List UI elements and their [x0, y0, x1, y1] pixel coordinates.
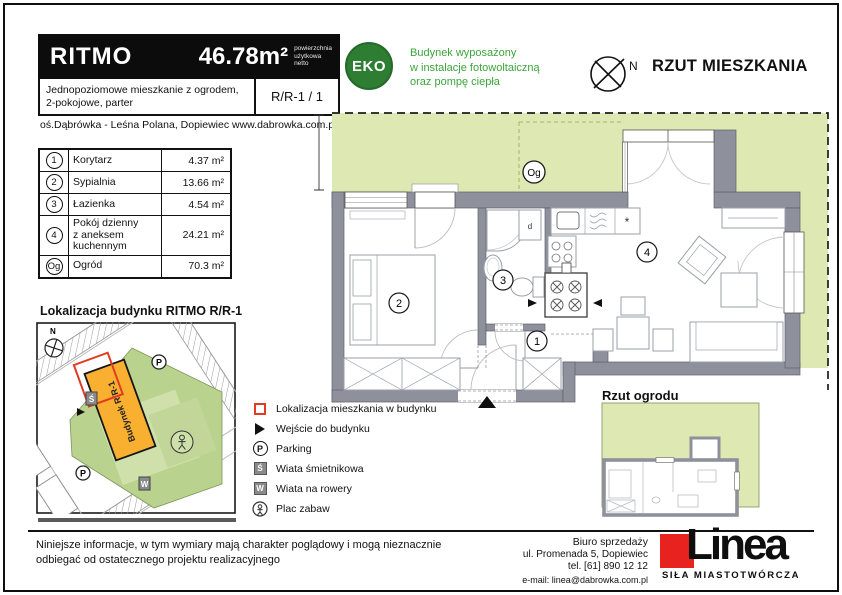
apartment-description: Jednopoziomowe mieszkanie z ogrodem, 2-p…: [40, 79, 254, 114]
map-scale-bar: [38, 518, 236, 522]
room-name: Sypialnia: [69, 172, 162, 193]
room-number-badge: 1: [46, 152, 63, 169]
north-letter: N: [629, 59, 638, 73]
floor-plan-sheet: RITMO 46.78m² powierzchnia użytkowa nett…: [0, 0, 842, 595]
office-phone: tel. [61] 890 12 12: [430, 561, 648, 574]
table-row: 1 Korytarz 4.37 m²: [40, 150, 230, 172]
sales-office-info: Biuro sprzedaży ul. Promenada 5, Dopiewi…: [430, 536, 648, 586]
room-area: 24.21 m²: [162, 216, 230, 255]
room-name: Łazienka: [69, 194, 162, 215]
room-name: Korytarz: [69, 150, 162, 171]
room-number-badge: 3: [46, 196, 63, 213]
office-email: e-mail: linea@dabrowka.com.pl: [430, 574, 648, 587]
room-label-4: 4: [644, 247, 650, 259]
table-row: Og Ogród 70.3 m²: [40, 256, 230, 277]
eco-description: Budynek wyposażony w instalacje fotowolt…: [410, 46, 540, 90]
room-label-2: 2: [396, 298, 402, 310]
office-title: Biuro sprzedaży: [430, 536, 648, 549]
estate-location: oś.Dąbrówka - Leśna Polana, Dopiewiec: [40, 119, 229, 131]
table-row: 3 Łazienka 4.54 m²: [40, 194, 230, 216]
disclaimer: Niniejsze informacje, w tym wymiary mają…: [36, 538, 441, 567]
legend-item: Ś Wiata śmietnikowa: [250, 461, 440, 476]
room-number-badge: Og: [46, 258, 63, 275]
legend-item: W Wiata na rowery: [250, 481, 440, 496]
shaft-arrow-left: [528, 299, 537, 307]
bedroom-furniture: [344, 255, 561, 390]
room-number-badge: 2: [46, 174, 63, 191]
room-area: 4.54 m²: [162, 194, 230, 215]
bathroom-fixtures: [484, 210, 544, 297]
apartment-outline-icon: [254, 403, 266, 415]
playground-icon: [252, 501, 268, 517]
room-name: Pokój dziennyz aneksem kuchennym: [69, 216, 162, 255]
room-label-1: 1: [534, 336, 540, 348]
dining-table: [617, 317, 649, 349]
svg-text:P: P: [80, 469, 86, 479]
stove: [548, 236, 576, 267]
parking-icon: P: [253, 441, 268, 456]
header-description-row: Jednopoziomowe mieszkanie z ogrodem, 2-p…: [38, 79, 340, 116]
appliance-label: d: [528, 222, 532, 231]
mini-apartment: [604, 460, 737, 515]
north-compass-icon: [586, 51, 632, 97]
radiator: [350, 211, 405, 219]
eco-badge: EKO: [345, 42, 393, 90]
logo-wordmark: Linea: [686, 520, 786, 570]
plan-title: RZUT MIESZKANIA: [652, 57, 808, 76]
site-map: Budynek R/R-1 Ś W P P N: [36, 322, 236, 514]
garden-plan: [598, 400, 842, 522]
utility-shaft: [545, 273, 587, 317]
room-area: 13.66 m²: [162, 172, 230, 193]
coffee-table: [721, 273, 757, 307]
chair: [621, 297, 645, 315]
site-map-title: Lokalizacja budynku RITMO R/R-1: [40, 304, 242, 318]
office-address: ul. Promenada 5, Dopiewiec: [430, 549, 648, 562]
chair: [653, 329, 673, 351]
developer-logo: Linea SIŁA MIASTOTWÓRCZA: [660, 531, 818, 583]
bin-shelter-icon: Ś: [254, 462, 267, 475]
shaft-arrow-right: [593, 299, 602, 307]
map-legend: Lokalizacja mieszkania w budynku Wejście…: [250, 401, 440, 522]
entrance-arrow-icon: [255, 423, 265, 435]
svg-text:N: N: [50, 327, 56, 336]
svg-text:P: P: [156, 358, 162, 368]
table-row: 4 Pokój dziennyz aneksem kuchennym 24.21…: [40, 216, 230, 256]
logo-tagline: SIŁA MIASTOTWÓRCZA: [662, 570, 800, 581]
dimension-line: [314, 115, 324, 190]
svg-text:W: W: [141, 480, 149, 489]
area-note: powierzchnia użytkowa netto: [294, 45, 332, 68]
room-area: 4.37 m²: [162, 150, 230, 171]
room-label-3: 3: [500, 275, 506, 287]
legend-item: Wejście do budynku: [250, 421, 440, 436]
table-row: 2 Sypialnia 13.66 m²: [40, 172, 230, 194]
header: RITMO 46.78m² powierzchnia użytkowa nett…: [38, 34, 340, 116]
room-table: 1 Korytarz 4.37 m² 2 Sypialnia 13.66 m² …: [38, 148, 232, 279]
room-number-badge: 4: [46, 227, 63, 244]
chair: [593, 329, 613, 351]
room-area: 70.3 m²: [162, 256, 230, 277]
header-black-bar: RITMO 46.78m² powierzchnia użytkowa nett…: [38, 34, 340, 79]
garden-label: Og: [527, 168, 540, 179]
project-name: RITMO: [50, 43, 132, 71]
fridge-label: *: [625, 215, 630, 229]
bike-shelter-icon: W: [254, 482, 267, 495]
svg-text:Ś: Ś: [89, 395, 95, 404]
room-name: Ogród: [69, 256, 162, 277]
legend-item: Plac zabaw: [250, 501, 440, 517]
apartment-area: 46.78m²: [199, 43, 288, 71]
legend-item: P Parking: [250, 441, 440, 456]
apartment-floor-plan: 1 2 3 4 Og d *: [305, 105, 835, 410]
